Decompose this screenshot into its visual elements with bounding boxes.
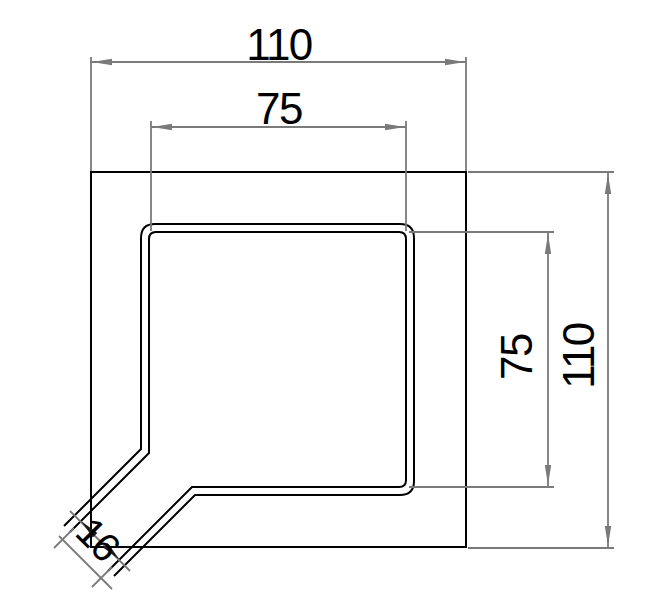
arrowhead-left	[92, 59, 112, 65]
channel-outer-contour	[64, 224, 414, 576]
dimension-lines	[54, 57, 614, 589]
technical-drawing-canvas: 110 75 110 75 16	[0, 0, 655, 602]
arrowhead-right	[445, 59, 465, 65]
arrowhead-left	[152, 124, 172, 130]
channel-inner-contour	[70, 232, 406, 571]
arrowhead-top	[545, 234, 551, 254]
extension-line	[92, 567, 112, 587]
dim-outer-width-label: 110	[246, 20, 312, 69]
technical-drawing-page: 110 75 110 75 16	[0, 0, 655, 602]
dim-inner-width-label: 75	[256, 84, 302, 133]
dim-inner-width	[151, 121, 406, 231]
part-geometry	[64, 172, 466, 576]
dim-outer-height-label: 110	[554, 323, 603, 389]
dim-inner-height-label: 75	[492, 334, 541, 380]
arrowhead-top	[605, 174, 611, 194]
arrowhead-bottom	[605, 526, 611, 546]
arrowhead-right	[385, 124, 405, 130]
arrowhead-bottom	[545, 465, 551, 485]
